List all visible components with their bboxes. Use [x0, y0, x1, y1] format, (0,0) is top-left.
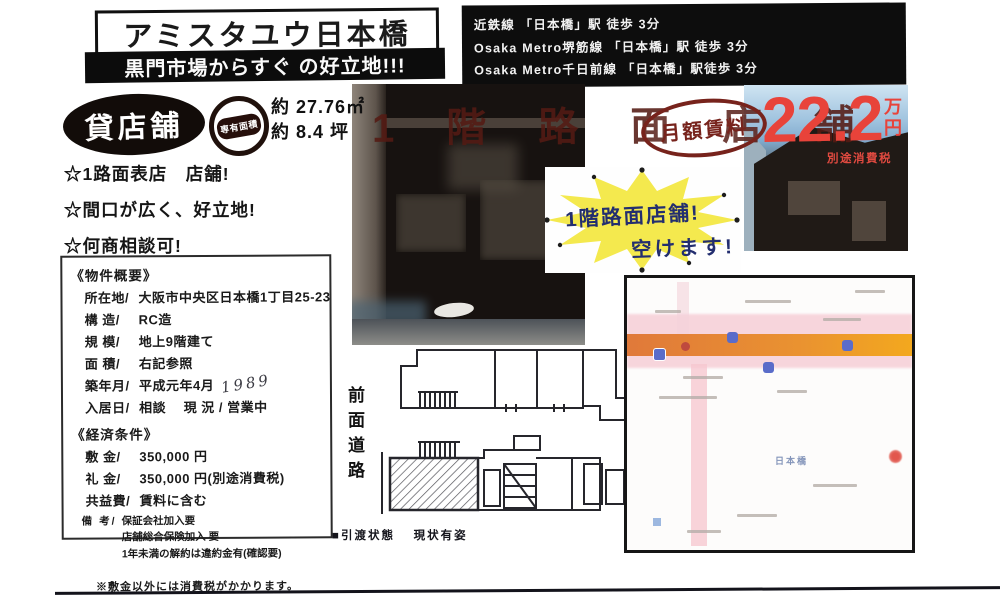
area-tsubo: 約 8.4 坪 — [271, 120, 365, 145]
map-label-dash — [855, 290, 885, 293]
exclusive-area-label: 専有面積 — [215, 112, 262, 140]
photo-sidewalk — [352, 319, 585, 345]
flyer-page: アミスタユウ日本橋 黒門市場からすぐ の好立地!!! 近鉄線 「日本橋」駅 徒歩… — [0, 0, 1000, 600]
map-red-marker — [889, 450, 902, 463]
spec-row: 敷 金/350,000 円 — [85, 445, 322, 465]
remark-1: 保証会社加入要 — [122, 513, 282, 530]
remark-2: 店舗総合保険加入 要 — [122, 529, 282, 546]
spec-row: 構 造/RC造 — [85, 308, 322, 328]
for-rent-badge: 貸店舗 — [62, 92, 206, 158]
starburst-callout: 1階路面店舗! 空けます! — [545, 167, 741, 273]
map-metro-icon — [763, 362, 774, 373]
map-label-dash — [659, 396, 717, 399]
map-label-dash — [777, 390, 807, 393]
access-line-3: Osaka Metro千日前線 「日本橋」駅徒歩 3分 — [474, 57, 894, 82]
handwritten-year: 1989 — [220, 371, 273, 398]
spec-row: 礼 金/350,000 円(別途消費税) — [85, 467, 322, 487]
map-metro-icon — [727, 332, 738, 343]
map-main-road — [627, 334, 912, 356]
access-line-1: 近鉄線 「日本橋」駅 徒歩 3分 — [474, 12, 894, 37]
spec-row: 共益費/賃料に含む — [85, 489, 322, 509]
map-poi-square — [653, 518, 661, 526]
front-road-label: 前面道路 — [342, 386, 367, 486]
station-access-box: 近鉄線 「日本橋」駅 徒歩 3分 Osaka Metro堺筋線 「日本橋」駅 徒… — [462, 2, 907, 87]
access-line-2: Osaka Metro堺筋線 「日本橋」駅 徒歩 3分 — [474, 34, 894, 59]
spec-row: 規 模/地上9階建て — [85, 330, 322, 350]
photo-white-object — [433, 301, 474, 319]
rent-tax-note: 別途消費税 — [827, 150, 892, 166]
map-side-road — [677, 282, 689, 334]
map-label-dash — [687, 530, 721, 533]
photo-window — [788, 181, 840, 215]
highlight-1: ☆1路面表店 店舗! — [64, 157, 256, 193]
map-metro-icon — [842, 340, 853, 351]
rent-amount: 22.2 — [761, 81, 883, 157]
spec-row: 築年月/ 平成元年4月 1989 — [85, 374, 322, 394]
map-subject-dot — [681, 342, 690, 351]
handover-condition: ■引渡状態 現状有姿 — [332, 527, 468, 543]
map-label-dash — [745, 300, 791, 303]
economics-heading: 《経済条件》 — [71, 422, 322, 443]
map-label-dash — [823, 318, 861, 321]
exclusive-area-stamp: 専有面積 — [209, 96, 269, 156]
map-label-dash — [683, 376, 723, 379]
overview-heading: 《物件概要》 — [70, 263, 321, 284]
map-label-dash — [813, 484, 857, 487]
map-metro-icon — [653, 348, 666, 361]
map-label-dash — [655, 310, 681, 313]
remarks-block: 備 考/ 保証会社加入要 店舗総合保険加入 要 1年未満の解約は違約金有(確認要… — [82, 512, 323, 562]
area-sqm: 約 27.76㎡ — [271, 95, 365, 120]
map-sakaisuji-road — [691, 364, 707, 546]
map-station-label: 日本橋 — [775, 454, 808, 467]
spec-row: 面 積/右記参照 — [85, 352, 322, 372]
starburst-line-2: 空けます! — [631, 229, 736, 263]
map-label-dash — [737, 514, 777, 517]
photo-window — [852, 201, 886, 241]
rent-unit: 万円 — [884, 97, 904, 138]
spec-row: 入居日/相談 現 況 / 営業中 — [85, 396, 322, 416]
highlight-2: ☆間口が広く、好立地! — [64, 193, 256, 229]
floor-plan — [368, 346, 630, 526]
photo-window — [396, 194, 466, 252]
location-map: 日本橋 — [624, 275, 915, 553]
property-spec-box: 《物件概要》 所在地/大阪市中央区日本橋1丁目25-23 構 造/RC造 規 模… — [60, 254, 332, 539]
highlight-bullets: ☆1路面表店 店舗! ☆間口が広く、好立地! ☆何商相談可! — [64, 157, 256, 265]
remark-3: 1年未満の解約は違約金有(確認要) — [122, 545, 282, 562]
subtitle-banner: 黒門市場からすぐ の好立地!!! — [85, 48, 445, 83]
floor-area-values: 約 27.76㎡ 約 8.4 坪 — [271, 95, 365, 145]
spec-row: 所在地/大阪市中央区日本橋1丁目25-23 — [84, 286, 321, 306]
